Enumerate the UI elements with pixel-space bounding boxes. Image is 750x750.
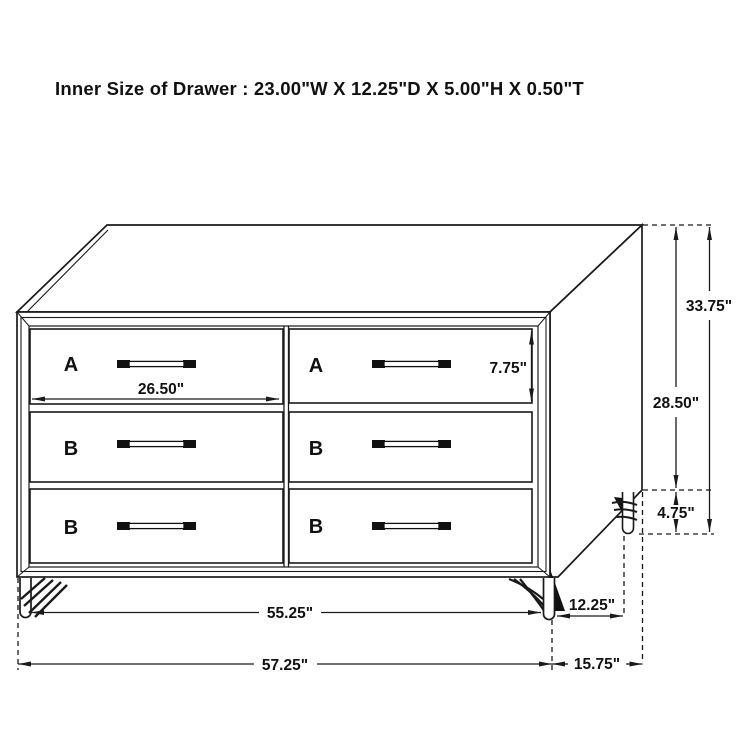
dim-total-width-value: 57.25"	[262, 657, 308, 674]
dim-total-width: 57.25"	[18, 657, 552, 674]
drawer-label-b-middle-left: B	[64, 438, 78, 460]
dim-case-height: 28.50"	[653, 227, 699, 488]
drawer-fronts	[30, 329, 532, 563]
dim-leg-span-width: 55.25"	[31, 605, 541, 622]
handle-top-right	[372, 360, 451, 368]
dim-total-height-value: 33.75"	[686, 298, 732, 315]
dim-drawer-width-value: 26.50"	[138, 381, 184, 398]
page-title: Inner Size of Drawer : 23.00"W X 12.25"D…	[55, 78, 584, 100]
dim-leg-span-width-value: 55.25"	[267, 605, 313, 622]
dim-drawer-front-height-value: 7.75"	[489, 360, 527, 377]
drawer-label-a-left: A	[64, 354, 78, 376]
drawer-label-b-bottom-right: B	[309, 516, 323, 538]
dim-leg-span-depth-value: 12.25"	[569, 597, 615, 614]
drawer-label-b-bottom-left: B	[64, 517, 78, 539]
dresser-dimension-drawing: A A B B B B	[0, 0, 750, 750]
handle-middle-left	[117, 440, 196, 448]
front-left-leg	[20, 578, 67, 618]
dim-leg-height: 4.75"	[657, 492, 695, 532]
handle-bottom-right	[372, 522, 451, 530]
drawer-label-b-middle-right: B	[309, 438, 323, 460]
dim-leg-span-depth: 12.25"	[557, 597, 623, 616]
dim-total-depth-value: 15.75"	[574, 656, 620, 673]
drawer-label-a-right: A	[309, 355, 323, 377]
dimension-diagram-page: Inner Size of Drawer : 23.00"W X 12.25"D…	[0, 0, 750, 750]
handle-top-left	[117, 360, 196, 368]
dim-total-height: 33.75"	[686, 227, 732, 532]
dresser-top-face	[17, 225, 642, 312]
dim-leg-height-value: 4.75"	[657, 505, 695, 522]
handle-middle-right	[372, 440, 451, 448]
handle-bottom-left	[117, 522, 196, 530]
dim-total-depth: 15.75"	[552, 656, 643, 673]
dim-case-height-value: 28.50"	[653, 395, 699, 412]
